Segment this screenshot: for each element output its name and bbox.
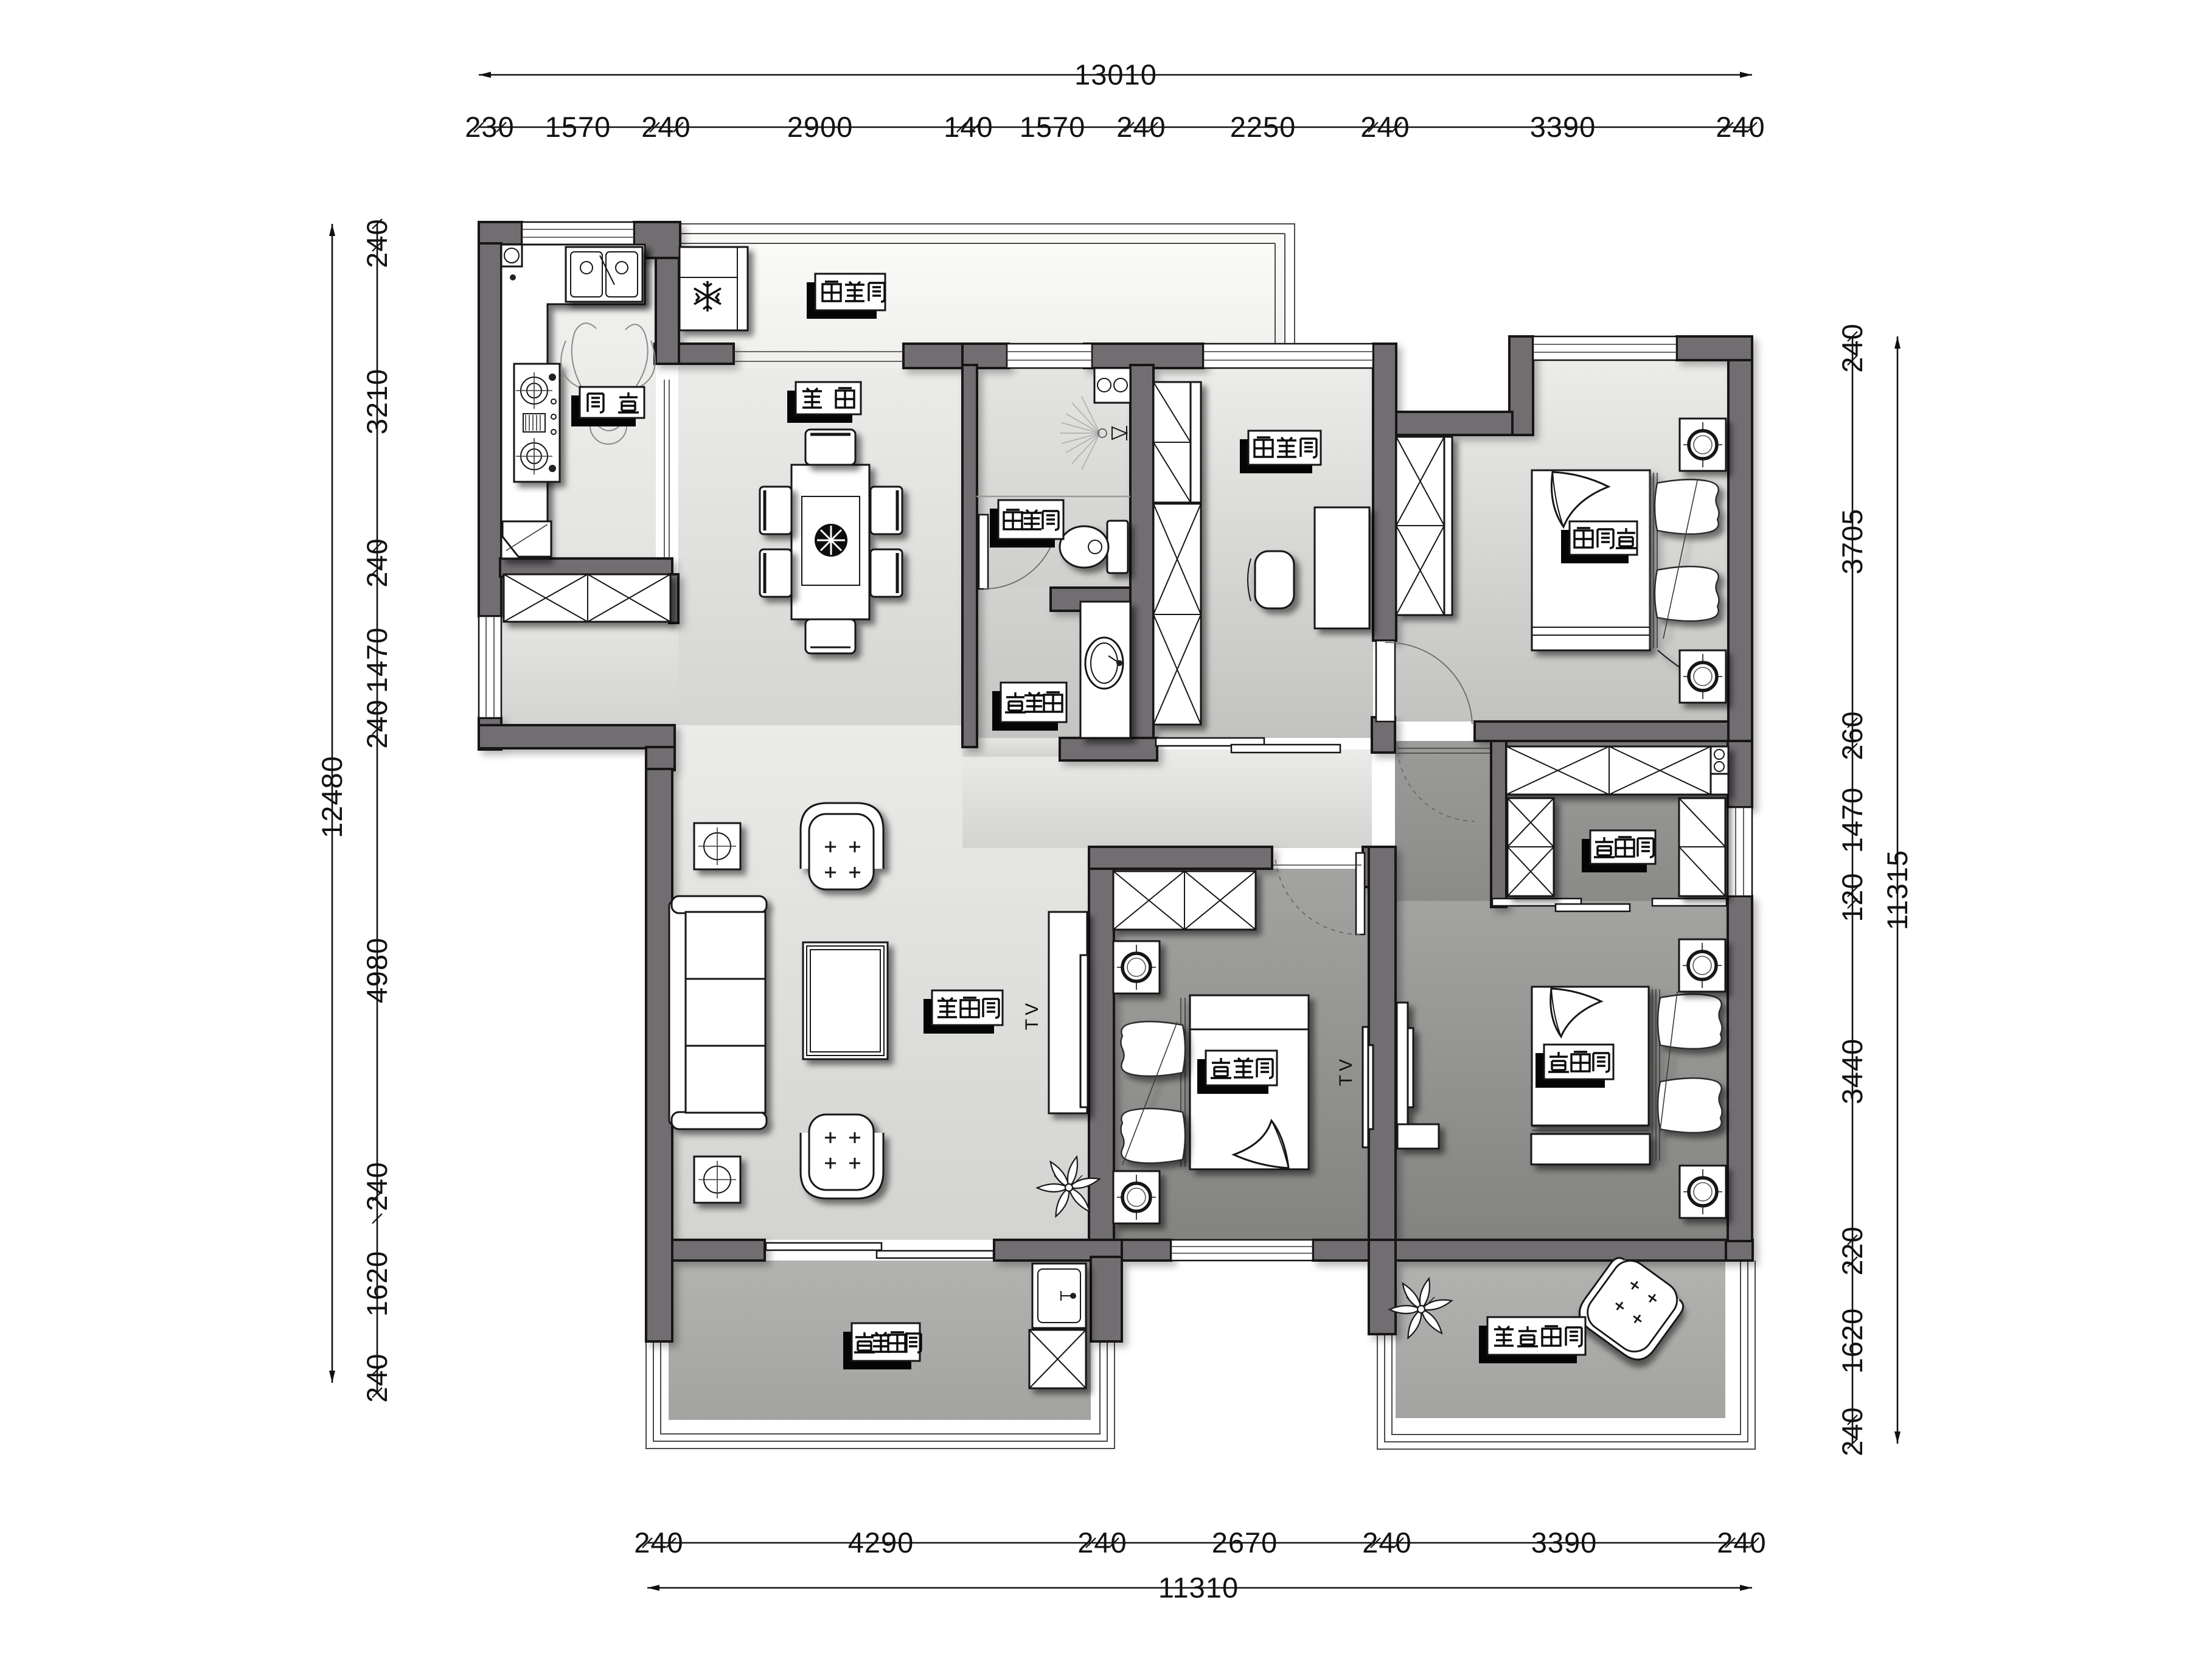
svg-text:11315: 11315	[1881, 850, 1913, 930]
svg-text:230: 230	[465, 111, 514, 143]
svg-text:240: 240	[1716, 111, 1765, 143]
svg-text:240: 240	[1360, 111, 1410, 143]
svg-text:220: 220	[1836, 1226, 1868, 1275]
svg-text:13010: 13010	[1074, 58, 1157, 91]
svg-text:240: 240	[1836, 323, 1868, 372]
svg-text:240: 240	[361, 699, 393, 748]
svg-text:1620: 1620	[361, 1251, 393, 1317]
svg-text:2250: 2250	[1230, 111, 1296, 143]
svg-text:TV: TV	[1336, 1056, 1356, 1086]
svg-text:240: 240	[1836, 1407, 1868, 1456]
svg-text:260: 260	[1836, 711, 1868, 760]
svg-text:TV: TV	[1022, 1000, 1042, 1030]
svg-text:240: 240	[634, 1526, 683, 1559]
svg-text:120: 120	[1836, 872, 1868, 922]
svg-text:240: 240	[641, 111, 690, 143]
svg-text:3440: 3440	[1836, 1038, 1868, 1105]
svg-text:1470: 1470	[361, 627, 393, 694]
svg-text:240: 240	[1077, 1526, 1127, 1559]
svg-text:140: 140	[944, 111, 993, 143]
svg-text:12480: 12480	[316, 756, 348, 838]
svg-text:240: 240	[361, 538, 393, 587]
svg-text:1570: 1570	[1020, 111, 1086, 143]
svg-text:1570: 1570	[545, 111, 611, 143]
svg-text:11310: 11310	[1158, 1571, 1239, 1604]
svg-text:2900: 2900	[787, 111, 854, 143]
svg-text:3705: 3705	[1836, 509, 1868, 575]
svg-text:240: 240	[1362, 1526, 1411, 1559]
svg-text:3390: 3390	[1530, 111, 1596, 143]
svg-text:3390: 3390	[1531, 1526, 1598, 1559]
svg-text:1470: 1470	[1836, 787, 1868, 854]
svg-text:240: 240	[1717, 1526, 1766, 1559]
svg-text:240: 240	[361, 1353, 393, 1402]
svg-text:240: 240	[361, 1161, 393, 1211]
svg-text:240: 240	[361, 218, 393, 268]
svg-text:240: 240	[1116, 111, 1166, 143]
svg-text:3210: 3210	[361, 369, 393, 435]
svg-text:4980: 4980	[361, 937, 393, 1004]
svg-text:2670: 2670	[1212, 1526, 1278, 1559]
svg-text:1620: 1620	[1836, 1308, 1868, 1374]
svg-text:4290: 4290	[848, 1526, 914, 1559]
